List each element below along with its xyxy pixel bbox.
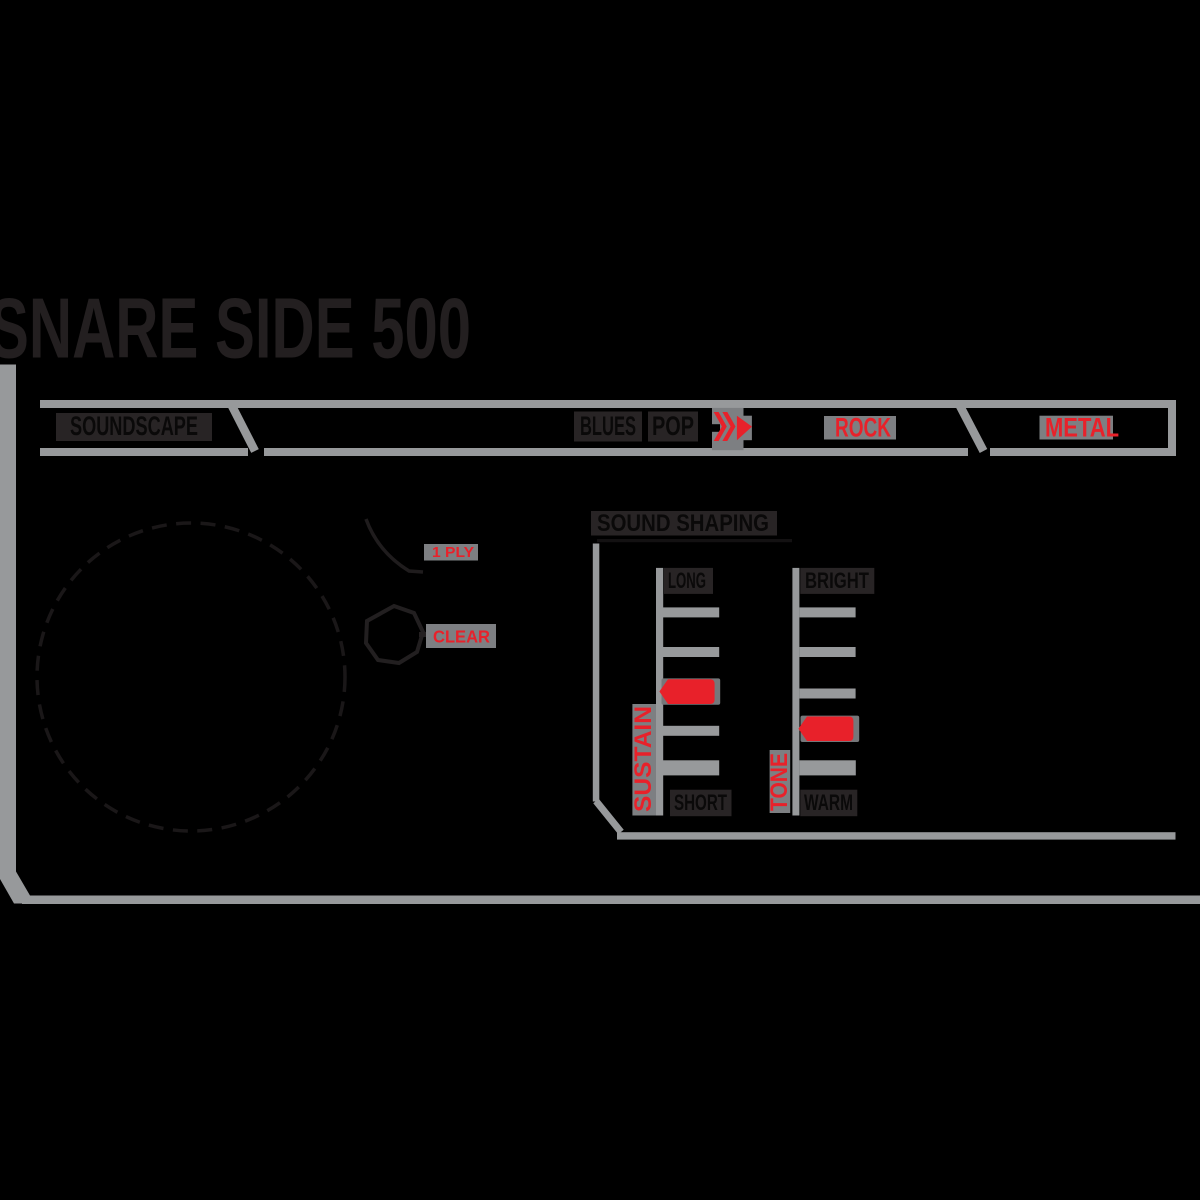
svg-text:CLEAR: CLEAR	[433, 627, 490, 647]
svg-text:BLUES: BLUES	[580, 411, 636, 441]
svg-text:1 PLY: 1 PLY	[432, 544, 474, 561]
svg-text:SUSTAIN: SUSTAIN	[630, 706, 657, 812]
svg-text:SOUND SHAPING: SOUND SHAPING	[597, 510, 769, 537]
svg-text:METAL: METAL	[1045, 413, 1119, 443]
svg-text:SHORT: SHORT	[674, 790, 727, 815]
svg-text:WARM: WARM	[804, 790, 853, 815]
svg-text:POP: POP	[652, 411, 694, 441]
svg-text:BRIGHT: BRIGHT	[805, 568, 869, 593]
svg-text:SNARE SIDE 500: SNARE SIDE 500	[0, 282, 471, 377]
svg-text:TONE: TONE	[766, 753, 793, 811]
svg-text:LONG: LONG	[668, 568, 706, 593]
svg-text:SOUNDSCAPE: SOUNDSCAPE	[70, 411, 198, 441]
svg-text:ROCK: ROCK	[835, 413, 891, 443]
